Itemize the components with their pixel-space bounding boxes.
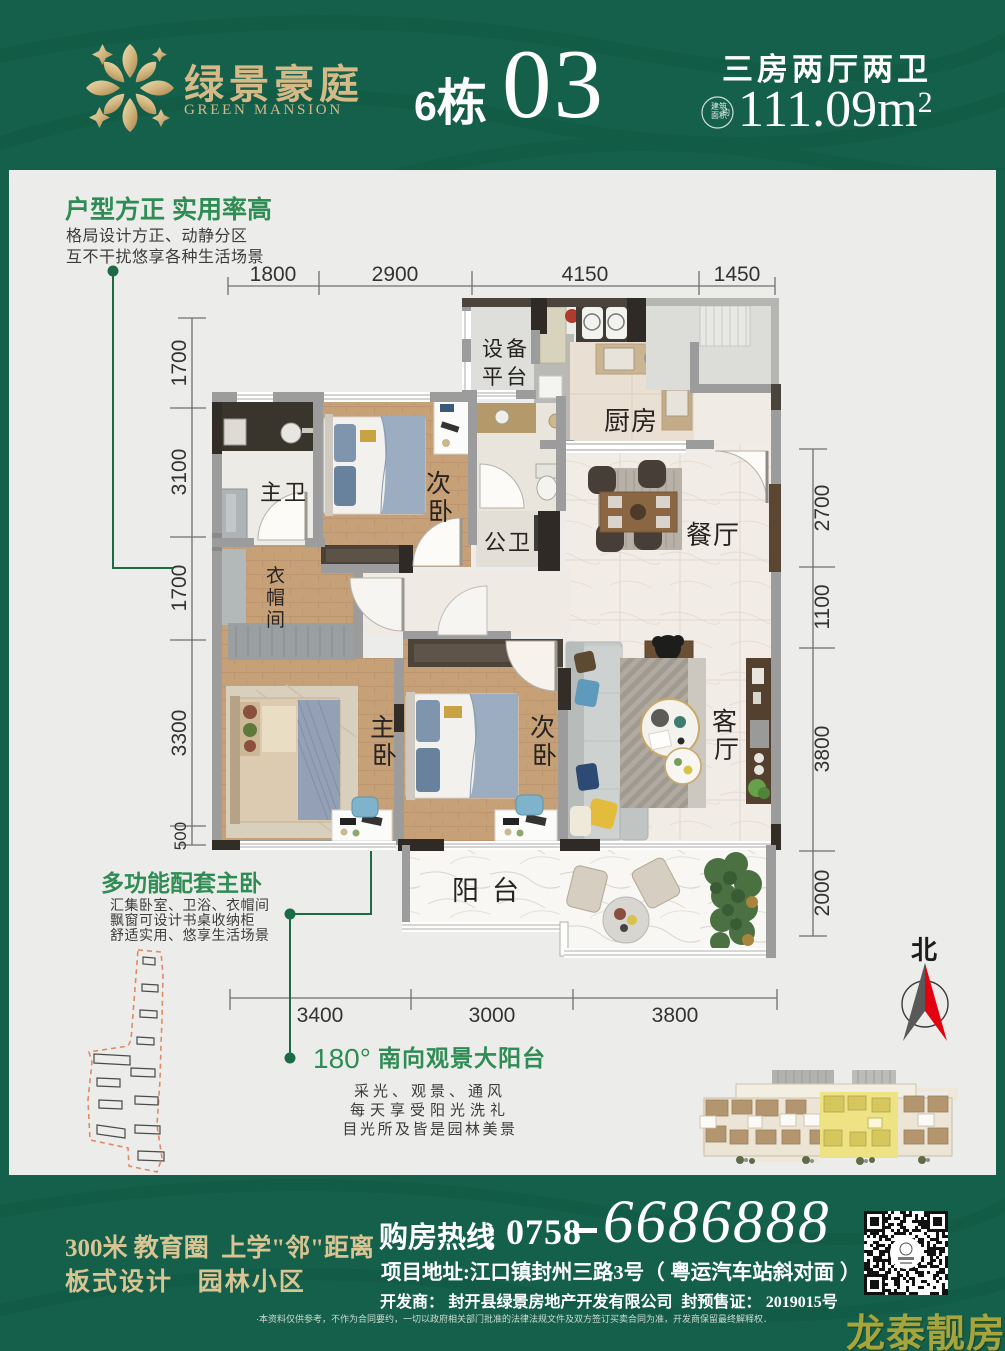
- svg-text:3400: 3400: [297, 1004, 344, 1027]
- svg-text:北: 北: [911, 935, 937, 965]
- svg-text:格局设计方正、动静分区: 格局设计方正、动静分区: [66, 227, 248, 245]
- svg-text:1800: 1800: [250, 263, 297, 286]
- svg-text:1100: 1100: [811, 584, 834, 629]
- svg-text:卧: 卧: [428, 498, 453, 526]
- svg-text:2900: 2900: [372, 263, 419, 286]
- svg-text:厨房: 厨房: [604, 407, 658, 436]
- svg-text:目光所及皆是园林美景: 目光所及皆是园林美景: [342, 1121, 517, 1138]
- svg-text:180°: 180°: [313, 1043, 371, 1074]
- svg-text:平台: 平台: [482, 365, 530, 389]
- svg-text:2000: 2000: [811, 870, 834, 917]
- svg-text:台: 台: [492, 876, 519, 906]
- svg-text:主: 主: [370, 714, 395, 742]
- svg-text:1700: 1700: [168, 340, 191, 387]
- svg-text:舒适实用、悠享生活场景: 舒适实用、悠享生活场景: [110, 927, 270, 943]
- svg-text:汇集卧室、卫浴、衣帽间: 汇集卧室、卫浴、衣帽间: [110, 897, 270, 913]
- svg-text:3100: 3100: [168, 449, 191, 496]
- svg-text:3300: 3300: [168, 710, 191, 757]
- svg-text:设备: 设备: [482, 337, 530, 361]
- svg-text:间: 间: [266, 609, 285, 631]
- svg-text:户型方正 实用率高: 户型方正 实用率高: [65, 195, 272, 224]
- svg-text:多功能配套主卧: 多功能配套主卧: [101, 870, 262, 896]
- svg-text:3000: 3000: [469, 1004, 516, 1027]
- svg-text:衣: 衣: [266, 565, 285, 587]
- svg-text:厅: 厅: [714, 737, 739, 764]
- svg-text:4150: 4150: [562, 263, 609, 286]
- svg-text:公卫: 公卫: [484, 530, 532, 555]
- svg-text:卧: 卧: [372, 742, 397, 770]
- svg-text:南向观景大阳台: 南向观景大阳台: [378, 1045, 546, 1071]
- svg-text:次: 次: [426, 470, 451, 498]
- svg-text:3800: 3800: [811, 726, 834, 773]
- svg-text:客: 客: [712, 708, 737, 736]
- svg-text:500: 500: [171, 822, 190, 850]
- svg-text:阳: 阳: [452, 876, 479, 906]
- svg-text:卧: 卧: [532, 742, 557, 770]
- svg-text:互不干扰悠享各种生活场景: 互不干扰悠享各种生活场景: [66, 248, 264, 266]
- svg-text:每天享受阳光洗礼: 每天享受阳光洗礼: [350, 1102, 510, 1119]
- svg-text:1700: 1700: [168, 565, 191, 612]
- svg-text:主卫: 主卫: [260, 480, 308, 505]
- svg-text:2700: 2700: [811, 485, 834, 532]
- svg-text:帽: 帽: [266, 587, 285, 609]
- svg-text:采光、观景、通风: 采光、观景、通风: [354, 1083, 506, 1100]
- svg-text:次: 次: [530, 714, 555, 742]
- svg-text:3800: 3800: [652, 1004, 699, 1027]
- svg-text:1450: 1450: [714, 263, 761, 286]
- svg-text:餐厅: 餐厅: [686, 521, 740, 550]
- svg-text:飘窗可设计书桌收纳柜: 飘窗可设计书桌收纳柜: [110, 912, 255, 928]
